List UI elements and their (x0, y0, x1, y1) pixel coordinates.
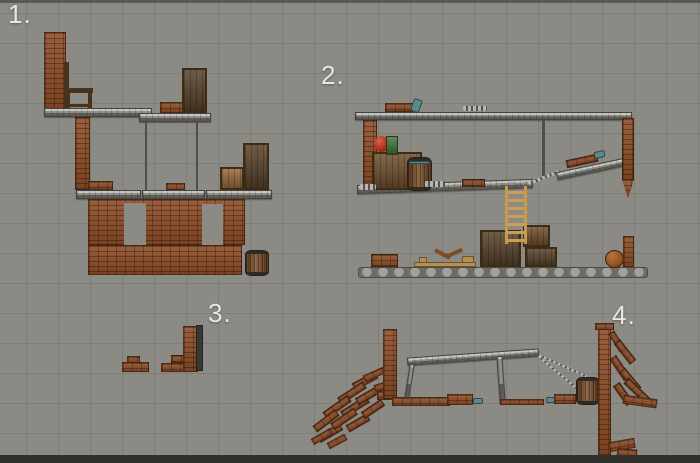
rope[interactable] (538, 356, 581, 393)
scene-1-label: 1. (8, 1, 32, 27)
bridge-beam[interactable] (407, 348, 539, 365)
ground-bricks[interactable] (392, 397, 450, 406)
barrel[interactable] (576, 377, 600, 405)
spill-brick[interactable] (623, 395, 658, 409)
bottom-bar (0, 455, 700, 463)
scene-4-label: 4. (612, 302, 636, 328)
brick-wall[interactable] (598, 328, 611, 456)
scene-4 (0, 0, 700, 463)
ground-bricks[interactable] (447, 394, 473, 405)
ground-bricks[interactable] (500, 399, 544, 405)
bridge-leg[interactable] (404, 364, 414, 398)
rope[interactable] (539, 355, 587, 378)
bottle[interactable] (473, 398, 483, 404)
brick-tower[interactable] (383, 329, 397, 399)
bridge-leg[interactable] (496, 356, 505, 403)
scene-3-label: 3. (208, 300, 232, 326)
scene-2-label: 2. (321, 62, 345, 88)
ground-bricks[interactable] (554, 394, 576, 404)
game-canvas: 1. 2. 3. 4. (0, 0, 700, 463)
